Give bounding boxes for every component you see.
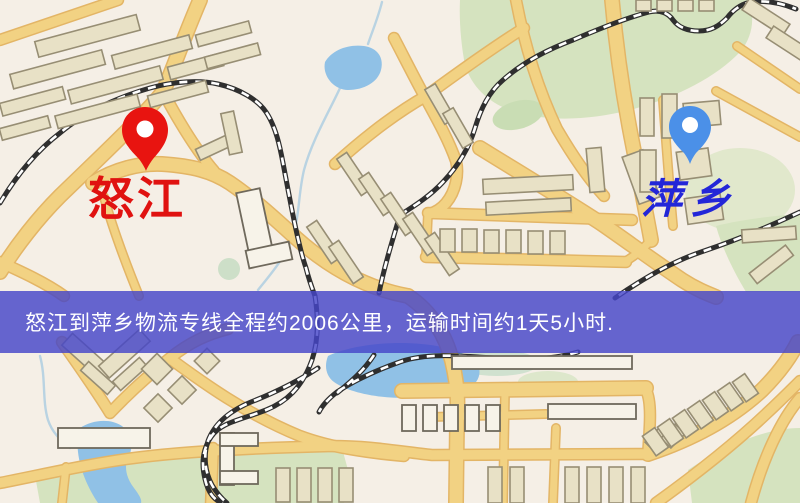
route-info-banner: 怒江到萍乡物流专线全程约2006公里，运输时间约1天5小时.: [0, 291, 800, 353]
route-info-text: 怒江到萍乡物流专线全程约2006公里，运输时间约1天5小时.: [0, 307, 614, 337]
map-canvas[interactable]: [0, 0, 800, 503]
origin-city-label: 怒江: [88, 176, 186, 222]
destination-city-label: 萍乡: [641, 179, 739, 220]
map-container: 怒江到萍乡物流专线全程约2006公里，运输时间约1天5小时. 怒江 萍乡: [0, 0, 800, 503]
